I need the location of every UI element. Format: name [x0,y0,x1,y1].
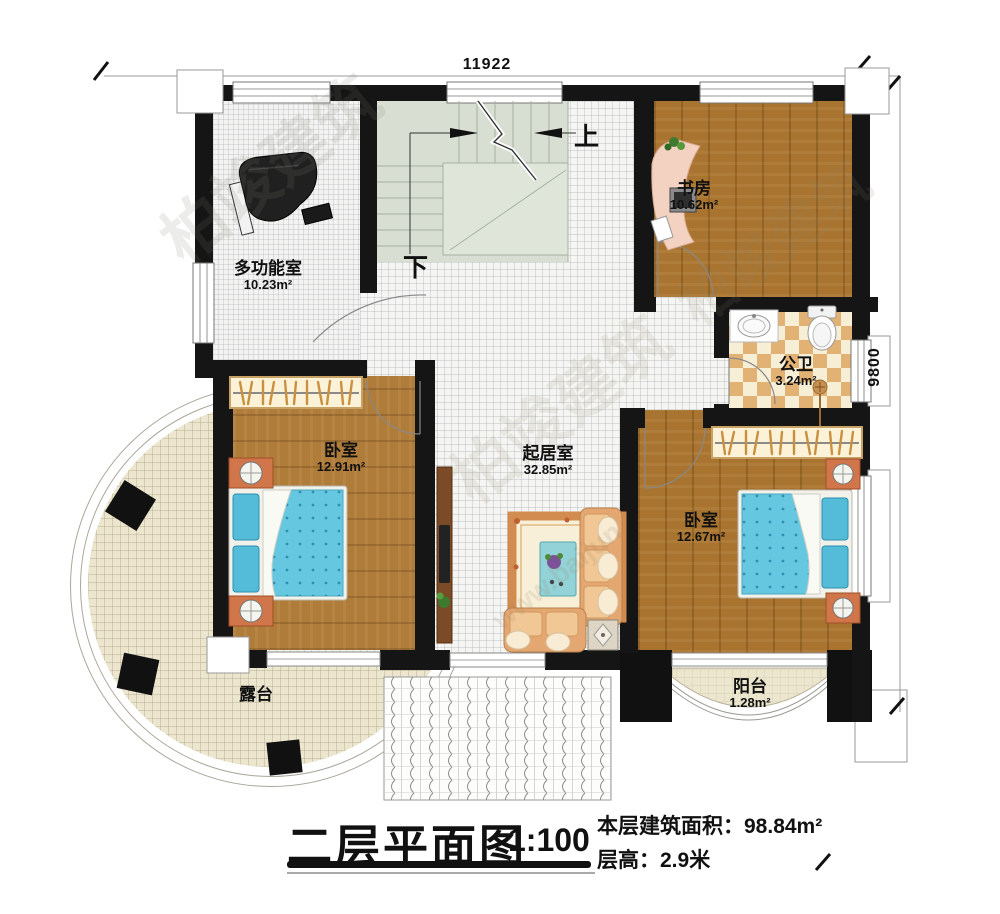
room-label-balcony: 阳台 1.28m² [729,678,770,709]
room-area: 3.24m² [775,374,816,388]
plan-area-line: 本层建筑面积：98.84m² [597,810,822,844]
tv-console [437,467,453,643]
room-name: 起居室 [523,445,574,463]
room-label-bedroom-right: 卧室 12.67m² [677,512,725,543]
piano [225,143,333,240]
plan-height-line: 层高：2.9米 [597,844,822,878]
end-table [588,620,618,650]
title-underline-thick [287,861,591,868]
room-label-bedroom-left: 卧室 12.91m² [317,442,365,473]
bed-left [229,486,347,600]
plan-area-label: 本层建筑面积： [597,815,744,838]
room-name: 书房 [670,180,718,198]
room-area: 1.28m² [729,696,770,710]
room-name: 多功能室 [234,260,302,278]
stair-up-label: 上 [574,117,599,153]
plan-info: 本层建筑面积：98.84m² 层高：2.9米 [597,810,822,878]
room-label-multiroom: 多功能室 10.23m² [234,260,302,291]
room-label-living: 起居室 32.85m² [523,445,574,476]
room-area: 32.85m² [523,463,574,477]
room-label-bathroom: 公卫 3.24m² [775,356,816,387]
sliding-doors [267,652,827,667]
room-area: 12.91m² [317,460,365,474]
plan-details [0,0,1000,914]
room-name: 公卫 [775,356,816,374]
bed-right [738,490,852,598]
room-label-terrace: 露台 [239,686,273,704]
room-area: 10.62m² [670,198,718,212]
room-name: 卧室 [317,442,365,460]
room-name: 阳台 [729,678,770,696]
floor-plan: 柏竣建筑 柏竣建筑 柏竣建筑 www.baijun 多功能室 10.23m² 书… [0,0,1000,914]
plan-scale: 1:100 [508,822,590,859]
room-name: 卧室 [677,512,725,530]
toilet [808,306,836,350]
closet-right [712,427,862,458]
dimension-width: 11922 [452,56,522,74]
title-underline-thin [287,872,595,874]
closet-left [230,377,362,408]
room-area: 10.23m² [234,278,302,292]
coffee-table [540,542,576,596]
room-area: 12.67m² [677,530,725,544]
sink [730,310,778,342]
room-label-study: 书房 10.62m² [670,180,718,211]
staircase [377,101,568,262]
plan-area-value: 98.84m² [744,815,822,838]
room-name: 露台 [239,686,273,704]
stair-down-label: 下 [403,248,428,284]
plan-height-label: 层高： [597,849,660,872]
dimension-height: 9800 [866,342,884,392]
plan-height-value: 2.9米 [660,849,710,872]
